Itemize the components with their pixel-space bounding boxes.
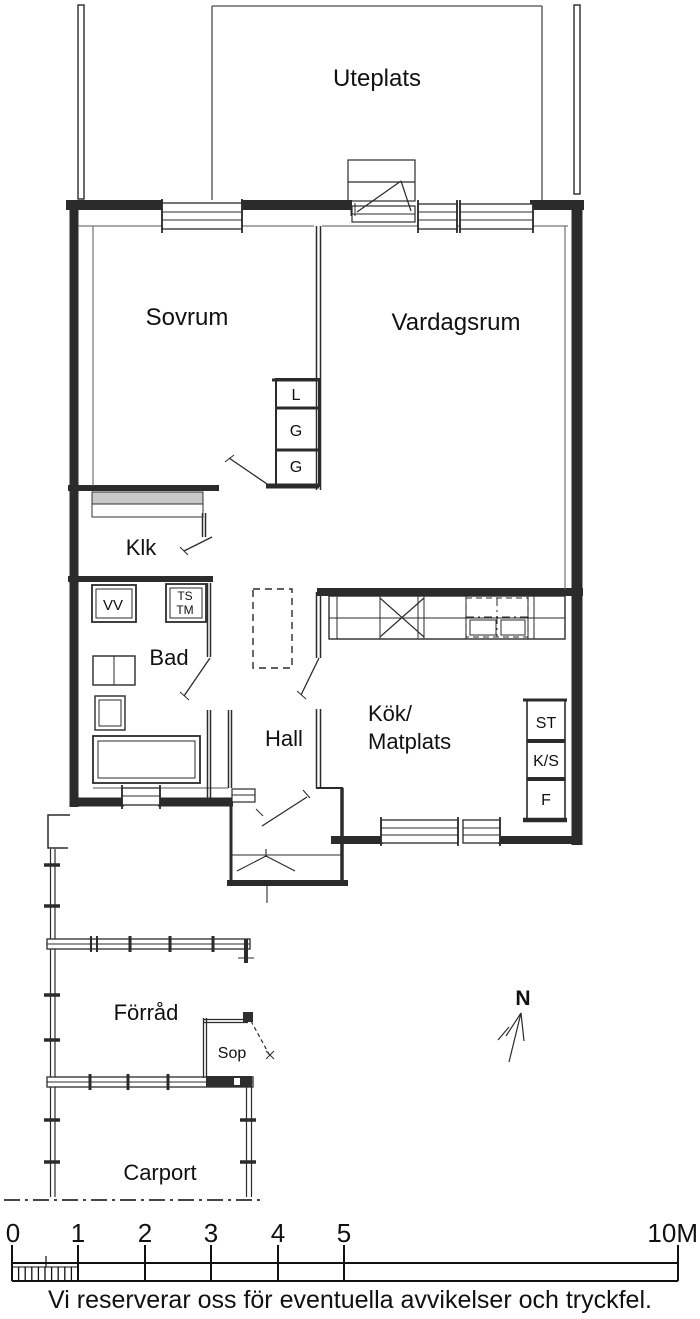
vanity-cabinet [93, 656, 135, 685]
floor-plan-page: Uteplats [0, 0, 700, 1319]
floor-plan-svg: Uteplats [0, 0, 700, 1319]
door-klk [180, 537, 212, 555]
window-kitchen-2 [463, 817, 500, 846]
fence-posts [78, 5, 580, 199]
window-vardagsrum-1 [418, 200, 457, 233]
entrance-step [231, 849, 342, 903]
scale-tick-0: 0 [6, 1218, 20, 1248]
window-bad-south [122, 785, 160, 809]
front-door [256, 790, 310, 826]
room-label-carport: Carport [123, 1160, 196, 1185]
room-label-uteplats: Uteplats [333, 65, 421, 92]
scale-tick-5: 5 [337, 1218, 351, 1248]
north-label: N [515, 987, 530, 1010]
room-label-hall: Hall [265, 726, 303, 751]
appliance-label-ks: K/S [533, 753, 559, 770]
north-arrow [498, 1013, 524, 1062]
room-label-vardagsrum: Vardagsrum [392, 309, 521, 336]
room-label-sovrum: Sovrum [146, 304, 229, 331]
scale-tick-1: 1 [71, 1218, 85, 1248]
closet-label-g2: G [290, 459, 302, 476]
klk-wardrobe [92, 492, 203, 517]
closet-label-l: L [292, 387, 301, 404]
uteplats-area [212, 6, 542, 200]
bathroom-fixtures [93, 656, 200, 783]
appliance-label-f: F [541, 792, 551, 809]
west-boundary-fence [44, 849, 60, 1197]
utility-label-ts: TS [177, 589, 192, 603]
door-sovrum [225, 455, 270, 486]
window-sovrum [162, 199, 242, 233]
window-vestibule [232, 789, 255, 802]
hall-dashed-cabinet [253, 589, 292, 668]
room-label-sop: Sop [218, 1045, 247, 1062]
window-kitchen-1 [381, 817, 458, 846]
scale-tick-3: 3 [204, 1218, 218, 1248]
kitchen-counter [329, 596, 565, 639]
scale-tick-10m: 10M [647, 1218, 698, 1248]
disclaimer-text: Vi reserverar oss för eventuella avvikel… [48, 1286, 652, 1314]
windows [122, 199, 533, 846]
scale-tick-4: 4 [271, 1218, 285, 1248]
window-vardagsrum-2 [460, 200, 533, 233]
exterior-step [48, 815, 70, 848]
door-kok [297, 658, 319, 699]
scale-bar: 0 1 2 3 4 5 10M [6, 1218, 698, 1281]
room-label-forrad: Förråd [114, 1000, 179, 1025]
utility-label-vv: VV [103, 597, 123, 614]
toilet [95, 696, 125, 730]
utility-label-tm: TM [176, 603, 193, 617]
appliance-label-st: ST [536, 715, 557, 732]
scale-tick-2: 2 [138, 1218, 152, 1248]
bathtub [93, 736, 200, 783]
room-label-kok-line1: Kök/ [368, 701, 413, 726]
room-label-klk: Klk [126, 535, 158, 560]
closet-label-g1: G [290, 423, 302, 440]
room-label-bad: Bad [149, 645, 188, 670]
room-label-kok-line2: Matplats [368, 729, 451, 754]
